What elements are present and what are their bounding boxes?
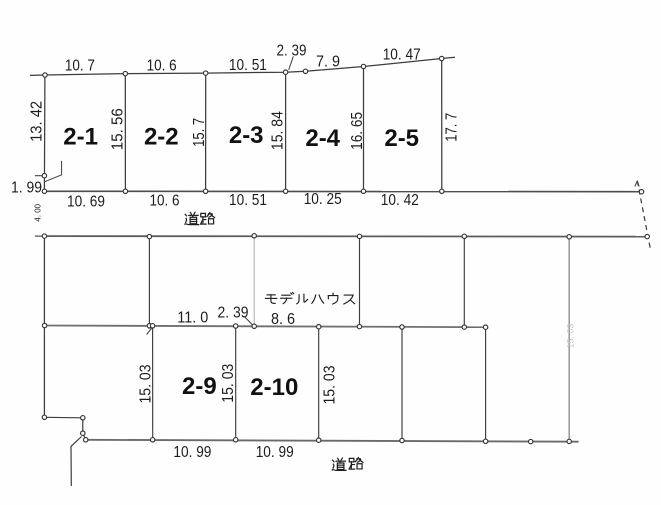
svg-text:10. 42: 10. 42 <box>381 192 419 209</box>
svg-text:2-2: 2-2 <box>144 124 179 151</box>
svg-text:2-3: 2-3 <box>229 122 264 149</box>
svg-text:15. 7: 15. 7 <box>191 118 208 147</box>
svg-text:15. 56: 15. 56 <box>110 108 127 150</box>
svg-text:11. 0: 11. 0 <box>177 310 208 327</box>
svg-text:8. 6: 8. 6 <box>271 311 295 328</box>
svg-text:4. 00: 4. 00 <box>34 203 43 221</box>
svg-text:10. 51: 10. 51 <box>229 57 267 74</box>
svg-text:13. 42: 13. 42 <box>29 101 46 142</box>
svg-text:10. 7: 10. 7 <box>65 58 95 75</box>
svg-text:1. 99: 1. 99 <box>11 180 42 197</box>
svg-text:15. 03: 15. 03 <box>321 365 338 404</box>
svg-text:2-10: 2-10 <box>250 374 298 401</box>
svg-text:16. 65: 16. 65 <box>349 112 366 150</box>
svg-text:15. 03: 15. 03 <box>566 323 576 348</box>
svg-text:15. 84: 15. 84 <box>270 111 287 150</box>
svg-text:15. 03: 15. 03 <box>220 364 237 403</box>
svg-text:10. 99: 10. 99 <box>256 444 294 461</box>
svg-text:10. 51: 10. 51 <box>229 192 267 209</box>
svg-text:2-9: 2-9 <box>182 373 217 400</box>
svg-text:2. 39: 2. 39 <box>218 305 249 322</box>
svg-text:17. 7: 17. 7 <box>443 113 460 142</box>
svg-text:10. 69: 10. 69 <box>67 193 105 210</box>
svg-text:15. 03: 15. 03 <box>138 364 155 403</box>
svg-text:2-4: 2-4 <box>305 125 340 152</box>
svg-text:10. 99: 10. 99 <box>173 444 211 461</box>
svg-text:10. 6: 10. 6 <box>147 58 177 75</box>
svg-text:2-1: 2-1 <box>63 124 98 151</box>
svg-text:10. 25: 10. 25 <box>304 191 342 208</box>
svg-text:10. 6: 10. 6 <box>150 193 180 210</box>
svg-text:10. 47: 10. 47 <box>383 47 421 64</box>
svg-text:2-5: 2-5 <box>384 125 419 152</box>
svg-text:2. 39: 2. 39 <box>277 43 307 60</box>
svg-text:7. 9: 7. 9 <box>316 54 340 71</box>
